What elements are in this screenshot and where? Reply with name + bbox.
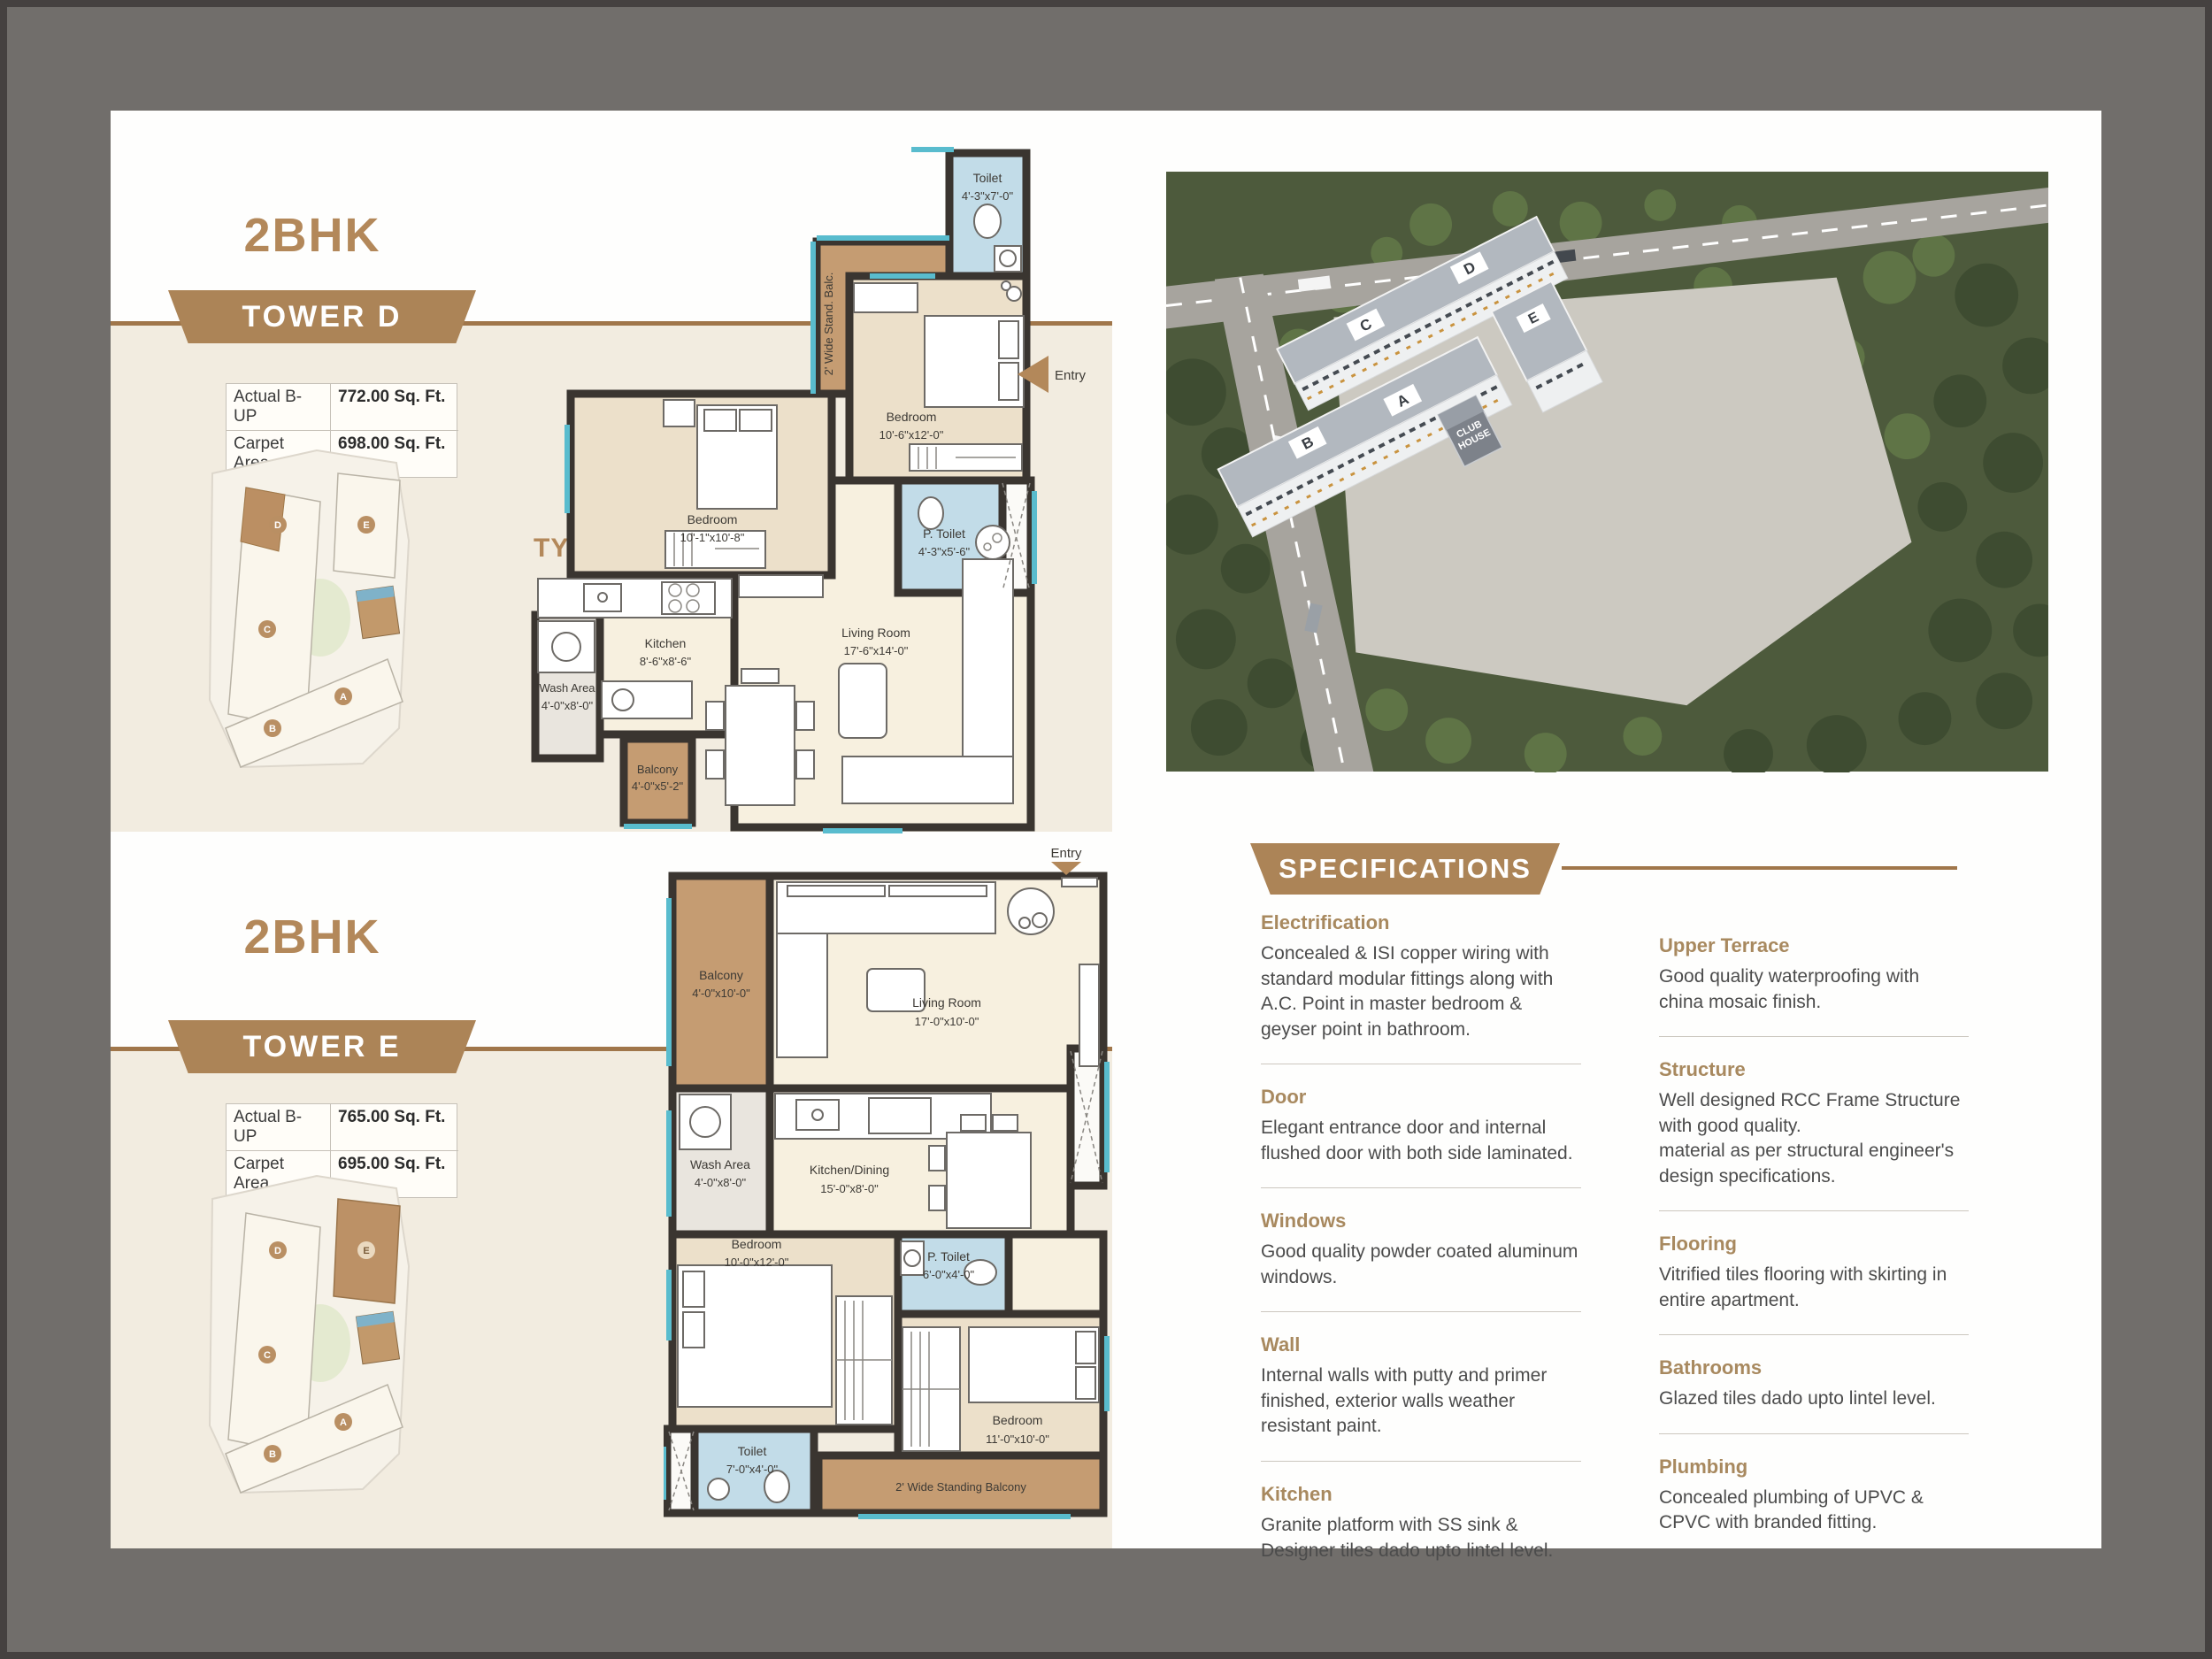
e-toilet-dim: 7'-0"x4'-0" (726, 1463, 779, 1476)
spec-body: Concealed & ISI copper wiring with stand… (1261, 941, 1581, 1042)
spec-divider (1659, 1036, 1969, 1037)
spec-divider (1659, 1433, 1969, 1434)
d-wash-dim: 4'-0"x8'-0" (541, 699, 594, 712)
thumb-d-label-b: B (269, 724, 276, 734)
d-living-name: Living Room (841, 626, 910, 640)
d-toilet-dim: 4'-3"x7'-0" (962, 189, 1014, 203)
tower-d-site-key: D C E A B (186, 436, 425, 781)
d-balcony-name: Balcony (637, 763, 679, 776)
specs-column-right: Upper Terrace Good quality waterproofing… (1659, 911, 1969, 1536)
e-balcony-name: Balcony (699, 968, 743, 982)
spec-divider (1261, 1187, 1581, 1188)
spec-title: Structure (1659, 1058, 1969, 1081)
specifications-banner: SPECIFICATIONS (1250, 843, 1560, 895)
e-kitchen-name: Kitchen/Dining (810, 1163, 889, 1177)
d-bedroom-left-dim: 10'-1"x10'-8" (680, 531, 745, 544)
d-toilet-name: Toilet (973, 171, 1002, 185)
actual-bup-value: 765.00 Sq. Ft. (331, 1104, 458, 1151)
spec-title: Windows (1261, 1210, 1581, 1233)
brochure-page: 2BHK TOWER D Actual B-UP 772.00 Sq. Ft. … (111, 111, 2101, 1548)
e-p-toilet-name: P. Toilet (927, 1249, 970, 1263)
specifications-rule (1562, 866, 1957, 870)
actual-bup-label: Actual B-UP (227, 1104, 331, 1151)
e-wash-name: Wash Area (690, 1157, 750, 1171)
d-bedroom-right-name: Bedroom (887, 410, 937, 424)
floor-plan-tower-e: Balcony 4'-0"x10'-0" Living Room 17'-0"x… (664, 845, 1159, 1553)
spec-title: Plumbing (1659, 1455, 1969, 1479)
tower-d-banner: TOWER D (168, 290, 476, 343)
e-living-name: Living Room (912, 995, 981, 1010)
e-bedroom-right-dim: 11'-0"x10'-0" (986, 1432, 1049, 1446)
tower-d-bhk-title: 2BHK (190, 208, 434, 263)
spec-body: Concealed plumbing of UPVC & CPVC with b… (1659, 1486, 1969, 1536)
tower-e-banner: TOWER E (168, 1020, 476, 1073)
d-entry-label: Entry (1055, 368, 1087, 383)
spec-title: Kitchen (1261, 1483, 1581, 1506)
spec-title: Electrification (1261, 911, 1581, 934)
actual-bup-label: Actual B-UP (227, 384, 331, 431)
thumb-e-label-d: D (274, 1246, 281, 1256)
spec-body: Well designed RCC Frame Structure with g… (1659, 1088, 1969, 1189)
d-p-toilet-dim: 4'-3"x5'-6" (918, 545, 971, 558)
specs-column-left: Electrification Concealed & ISI copper w… (1261, 911, 1581, 1563)
d-bedroom-left-name: Bedroom (687, 512, 738, 526)
thumb-d-label-d: D (274, 520, 281, 531)
e-p-toilet-dim: 6'-0"x4'-0" (923, 1268, 975, 1281)
spec-title: Upper Terrace (1659, 934, 1969, 957)
spec-divider (1261, 1064, 1581, 1064)
spec-body: Vitrified tiles flooring with skirting i… (1659, 1263, 1969, 1313)
spec-body: Granite platform with SS sink & Designer… (1261, 1513, 1581, 1563)
spec-body: Elegant entrance door and internal flush… (1261, 1116, 1581, 1166)
aerial-site-render: D C E B A CLUB HOUSE (1166, 171, 2048, 772)
d-kitchen-name: Kitchen (645, 636, 687, 650)
spec-body: Internal walls with putty and primer fin… (1261, 1363, 1581, 1440)
e-wash-dim: 4'-0"x8'-0" (695, 1176, 747, 1189)
e-toilet-name: Toilet (738, 1444, 767, 1458)
brochure-frame: 2BHK TOWER D Actual B-UP 772.00 Sq. Ft. … (0, 0, 2212, 1659)
floor-plan-tower-d: Toilet 4'-3"x7'-0" 2' Wide Stand. Balc. … (531, 142, 1115, 841)
spec-body: Good quality powder coated aluminum wind… (1261, 1240, 1581, 1290)
thumb-e-label-a: A (340, 1417, 347, 1428)
e-living-dim: 17'-0"x10'-0" (915, 1015, 979, 1028)
spec-divider (1659, 1210, 1969, 1211)
thumb-d-label-e: E (363, 520, 369, 531)
spec-body: Glazed tiles dado upto lintel level. (1659, 1386, 1969, 1412)
spec-title: Wall (1261, 1333, 1581, 1356)
d-p-toilet-name: P. Toilet (923, 526, 965, 541)
spec-divider (1261, 1461, 1581, 1462)
e-stand-balcony-label: 2' Wide Standing Balcony (895, 1480, 1026, 1494)
spec-body: Good quality waterproofing with china mo… (1659, 964, 1969, 1015)
thumb-d-label-a: A (340, 692, 347, 703)
e-balcony-dim: 4'-0"x10'-0" (692, 987, 750, 1000)
tower-e-bhk-title: 2BHK (190, 910, 434, 964)
e-bedroom-left-dim: 10'-0"x12'-0" (725, 1256, 789, 1269)
d-wash-name: Wash Area (539, 681, 595, 695)
e-entry-label: Entry (1050, 846, 1082, 861)
e-bedroom-left-name: Bedroom (732, 1237, 782, 1251)
d-balcony-dim: 4'-0"x5'-2" (632, 780, 684, 793)
spec-divider (1261, 1311, 1581, 1312)
thumb-e-label-c: C (264, 1350, 271, 1361)
d-kitchen-dim: 8'-6"x8'-6" (640, 655, 692, 668)
tower-e-site-key: D C E A B (186, 1162, 425, 1507)
actual-bup-value: 772.00 Sq. Ft. (331, 384, 458, 431)
spec-divider (1659, 1334, 1969, 1335)
e-kitchen-dim: 15'-0"x8'-0" (820, 1182, 879, 1195)
spec-title: Door (1261, 1086, 1581, 1109)
spec-title: Bathrooms (1659, 1356, 1969, 1379)
d-stand-balc-label: 2' Wide Stand. Balc. (822, 273, 835, 376)
spec-title: Flooring (1659, 1233, 1969, 1256)
d-bedroom-right-dim: 10'-6"x12'-0" (879, 428, 944, 442)
d-living-dim: 17'-6"x14'-0" (844, 644, 909, 657)
thumb-e-label-b: B (269, 1449, 276, 1460)
thumb-e-label-e: E (363, 1246, 369, 1256)
thumb-d-label-c: C (264, 625, 271, 635)
e-bedroom-right-name: Bedroom (993, 1413, 1043, 1427)
